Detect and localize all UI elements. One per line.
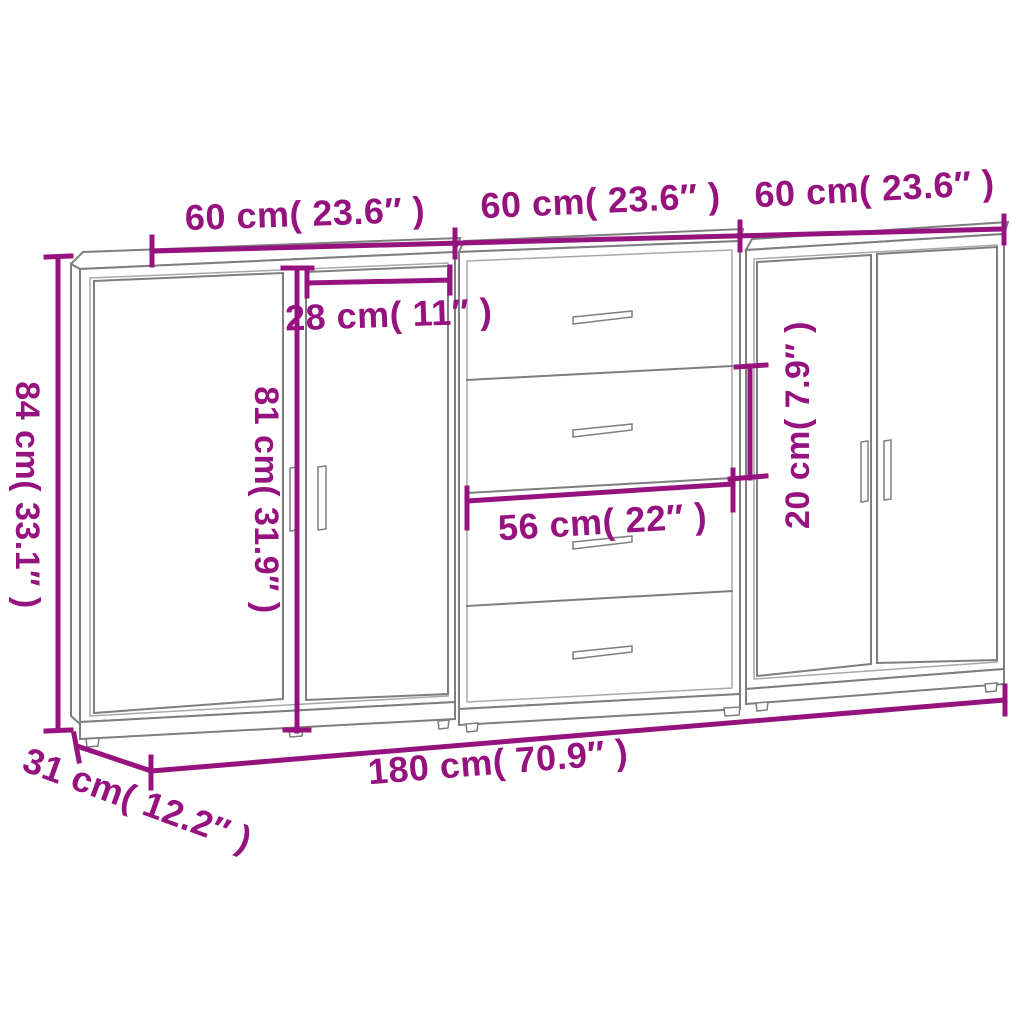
dim-tick [46,256,71,257]
dim-tick [730,476,766,479]
dim-tick [736,365,766,367]
right-cabinet-door-right [877,247,997,663]
middle-cabinet [459,229,743,732]
right-cabinet-foot [756,702,768,711]
middle-cabinet-foot [724,707,740,716]
left-cabinet-side-panel [71,264,80,724]
left-cabinet-handle-right [318,466,326,530]
left-cabinet-foot [438,720,449,729]
right-cabinet-handle-left [861,441,868,502]
dim-label-drawer-height: 20 cm( 7.9″ ) [776,295,820,555]
furniture-dimension-diagram: 60 cm( 23.6″ ) 60 cm( 23.6″ ) 60 cm( 23.… [0,0,1024,1024]
dim-label-overall-height: 84 cm( 33.1″ ) [5,335,49,655]
dim-label-door-width: 28 cm( 11″ ) [284,290,485,341]
dim-line-overall-height [46,256,71,731]
left-cabinet-foot [86,738,99,747]
dim-tick [46,730,71,731]
right-cabinet-foot [985,683,997,692]
right-cabinet-handle-right [884,440,891,500]
middle-cabinet-foot [466,723,478,732]
dim-label-door-height: 81 cm( 31.9″ ) [244,350,288,650]
